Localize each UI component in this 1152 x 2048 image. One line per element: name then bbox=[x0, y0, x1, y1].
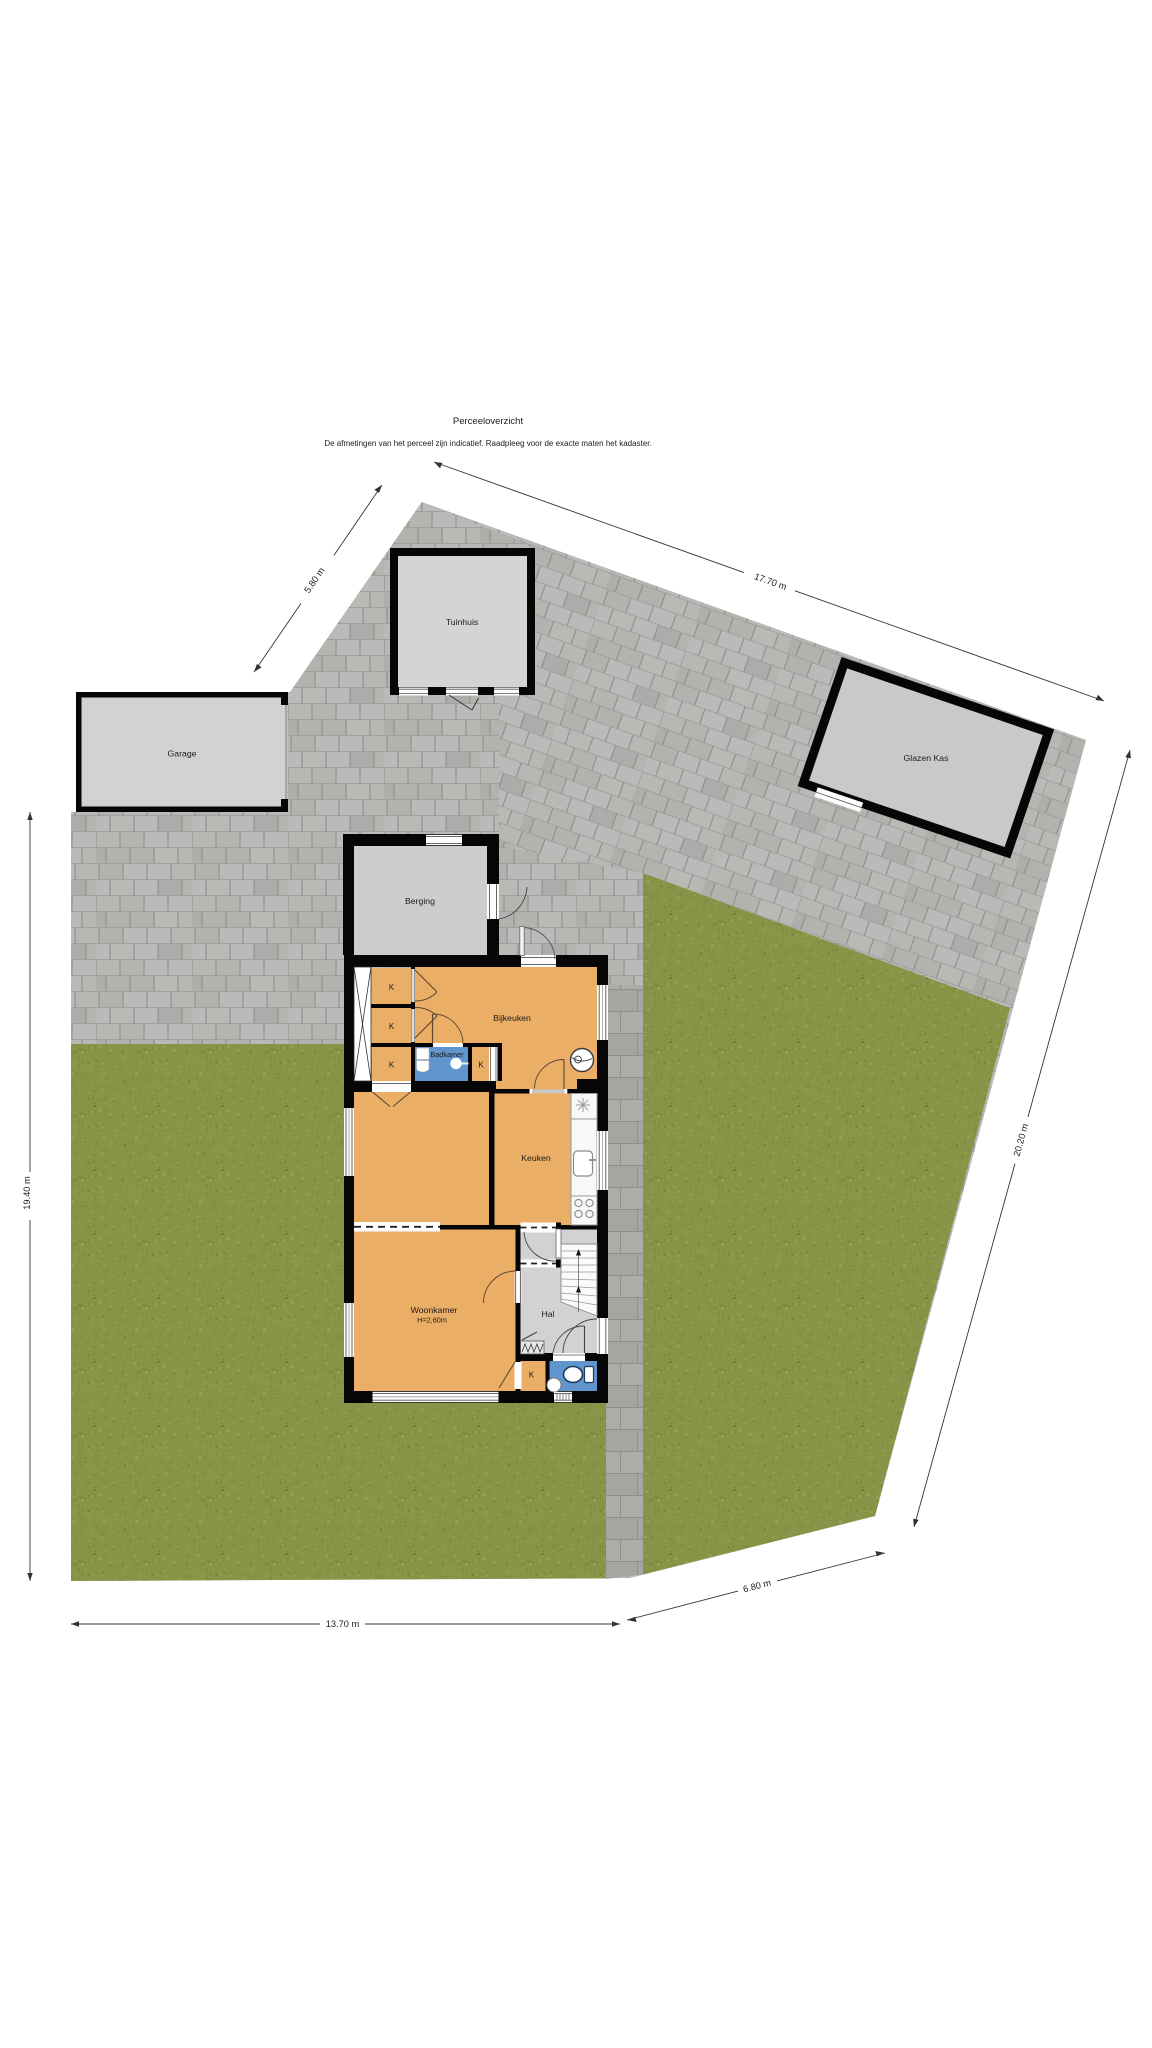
svg-text:Woonkamer: Woonkamer bbox=[411, 1305, 458, 1315]
svg-text:Tuinhuis: Tuinhuis bbox=[446, 617, 479, 627]
svg-text:6.80 m: 6.80 m bbox=[742, 1578, 772, 1595]
svg-text:K: K bbox=[389, 1022, 395, 1031]
svg-text:20.20 m: 20.20 m bbox=[1012, 1122, 1031, 1157]
svg-text:13.70 m: 13.70 m bbox=[326, 1619, 360, 1629]
svg-text:Badkamer: Badkamer bbox=[430, 1050, 464, 1059]
svg-text:Glazen Kas: Glazen Kas bbox=[904, 753, 950, 763]
svg-text:De afmetingen van het perceel: De afmetingen van het perceel zijn indic… bbox=[324, 439, 651, 448]
svg-text:17.70 m: 17.70 m bbox=[753, 571, 788, 592]
svg-text:Garage: Garage bbox=[168, 749, 197, 759]
svg-text:K: K bbox=[389, 983, 395, 992]
svg-text:Berging: Berging bbox=[405, 896, 435, 906]
svg-text:Perceeloverzicht: Perceeloverzicht bbox=[453, 416, 524, 427]
svg-text:K: K bbox=[478, 1061, 484, 1070]
svg-text:Keuken: Keuken bbox=[521, 1153, 551, 1163]
svg-text:H=2,60m: H=2,60m bbox=[417, 1316, 447, 1325]
svg-text:5.80 m: 5.80 m bbox=[302, 566, 327, 595]
svg-text:Hal: Hal bbox=[541, 1309, 554, 1319]
svg-text:K: K bbox=[389, 1061, 395, 1070]
svg-text:19.40 m: 19.40 m bbox=[22, 1176, 32, 1210]
svg-text:K: K bbox=[529, 1371, 535, 1380]
svg-text:Bijkeuken: Bijkeuken bbox=[493, 1013, 531, 1023]
